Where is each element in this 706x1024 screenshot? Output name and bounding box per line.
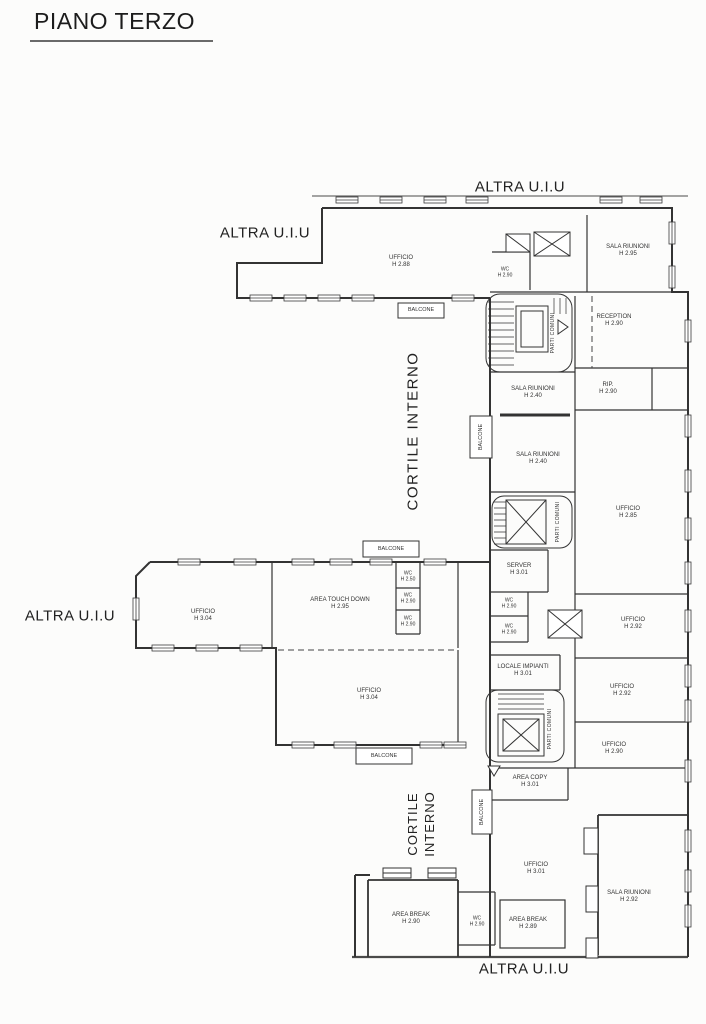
room-label-ufficio-right-3: UFFICIOH 2.92 [610, 684, 634, 698]
room-label-locale-impianti: LOCALE IMPIANTIH 3.01 [497, 664, 548, 678]
room-label-ufficio-center: UFFICIOH 3.04 [357, 688, 381, 702]
room-label-sala-riunioni-3: SALA RIUNIONIH 2.40 [516, 452, 560, 466]
floor-plan-drawing [0, 0, 706, 1024]
room-label-ufficio-right-4: UFFICIOH 2.90 [602, 742, 626, 756]
vent-symbols [383, 868, 456, 878]
room-label-wc-wing-1: WCH 2.50 [401, 572, 416, 583]
common-area-label: PARTI COMUNI [555, 502, 561, 543]
room-label-wc-bottom: WCH 2.90 [470, 917, 485, 928]
balcony-label: BALCONE [478, 424, 484, 450]
courtyard-label-lower: CORTILE INTERNO [404, 791, 438, 857]
room-label-area-touch-down: AREA TOUCH DOWNH 2.95 [310, 597, 369, 611]
courtyard-label-line2: INTERNO [421, 791, 438, 857]
elevator-icons-top [506, 232, 570, 256]
floor-plan-page: PIANO TERZO [0, 0, 706, 1024]
room-label-wc-mid-1: WCH 2.90 [502, 599, 517, 610]
room-label-server: SERVERH 3.01 [507, 563, 532, 577]
room-label-ufficio-top: UFFICIOH 2.88 [389, 255, 413, 269]
room-label-ufficio-left: UFFICIOH 3.04 [191, 609, 215, 623]
elevator-icon-mid [548, 610, 582, 638]
room-label-wc-wing-2: WCH 2.90 [401, 594, 416, 605]
balcony-label: BALCONE [378, 546, 404, 552]
room-label-rip: RIP.H 2.90 [599, 382, 617, 396]
courtyard-label-upper: CORTILE INTERNO [405, 352, 422, 511]
room-label-sala-riunioni-4: SALA RIUNIONIH 2.92 [607, 890, 651, 904]
courtyard-label-line1: CORTILE [404, 791, 421, 857]
altra-uiu-label-upper-left: ALTRA U.I.U [220, 225, 310, 242]
room-label-reception: RECEPTIONH 2.90 [596, 314, 631, 328]
common-area-label: PARTI COMUNI [550, 313, 556, 354]
balcony-label: BALCONE [479, 799, 485, 825]
room-label-wc-top: WCH 2.90 [498, 268, 513, 279]
balcony-label: BALCONE [408, 307, 434, 313]
altra-uiu-label-mid-left: ALTRA U.I.U [25, 608, 115, 625]
common-area-label: PARTI COMUNI [547, 709, 553, 750]
balcony-label: BALCONE [371, 753, 397, 759]
room-label-sala-riunioni-1: SALA RIUNIONIH 2.95 [606, 244, 650, 258]
wall-pilasters [584, 828, 598, 958]
room-label-ufficio-right-2: UFFICIOH 2.92 [621, 617, 645, 631]
room-label-area-break-2: AREA BREAKH 2.89 [509, 917, 547, 931]
altra-uiu-label-bottom: ALTRA U.I.U [479, 961, 569, 978]
room-label-sala-riunioni-2: SALA RIUNIONIH 2.40 [511, 386, 555, 400]
room-label-wc-mid-2: WCH 2.90 [502, 625, 517, 636]
room-label-ufficio-right-1: UFFICIOH 2.85 [616, 506, 640, 520]
room-label-ufficio-bottom: UFFICIOH 3.01 [524, 862, 548, 876]
room-label-wc-wing-3: WCH 2.90 [401, 617, 416, 628]
altra-uiu-label-top: ALTRA U.I.U [475, 179, 565, 196]
room-label-area-copy: AREA COPYH 3.01 [513, 775, 548, 789]
boundary-lines [312, 196, 688, 957]
room-label-area-break-1: AREA BREAKH 2.90 [392, 912, 430, 926]
